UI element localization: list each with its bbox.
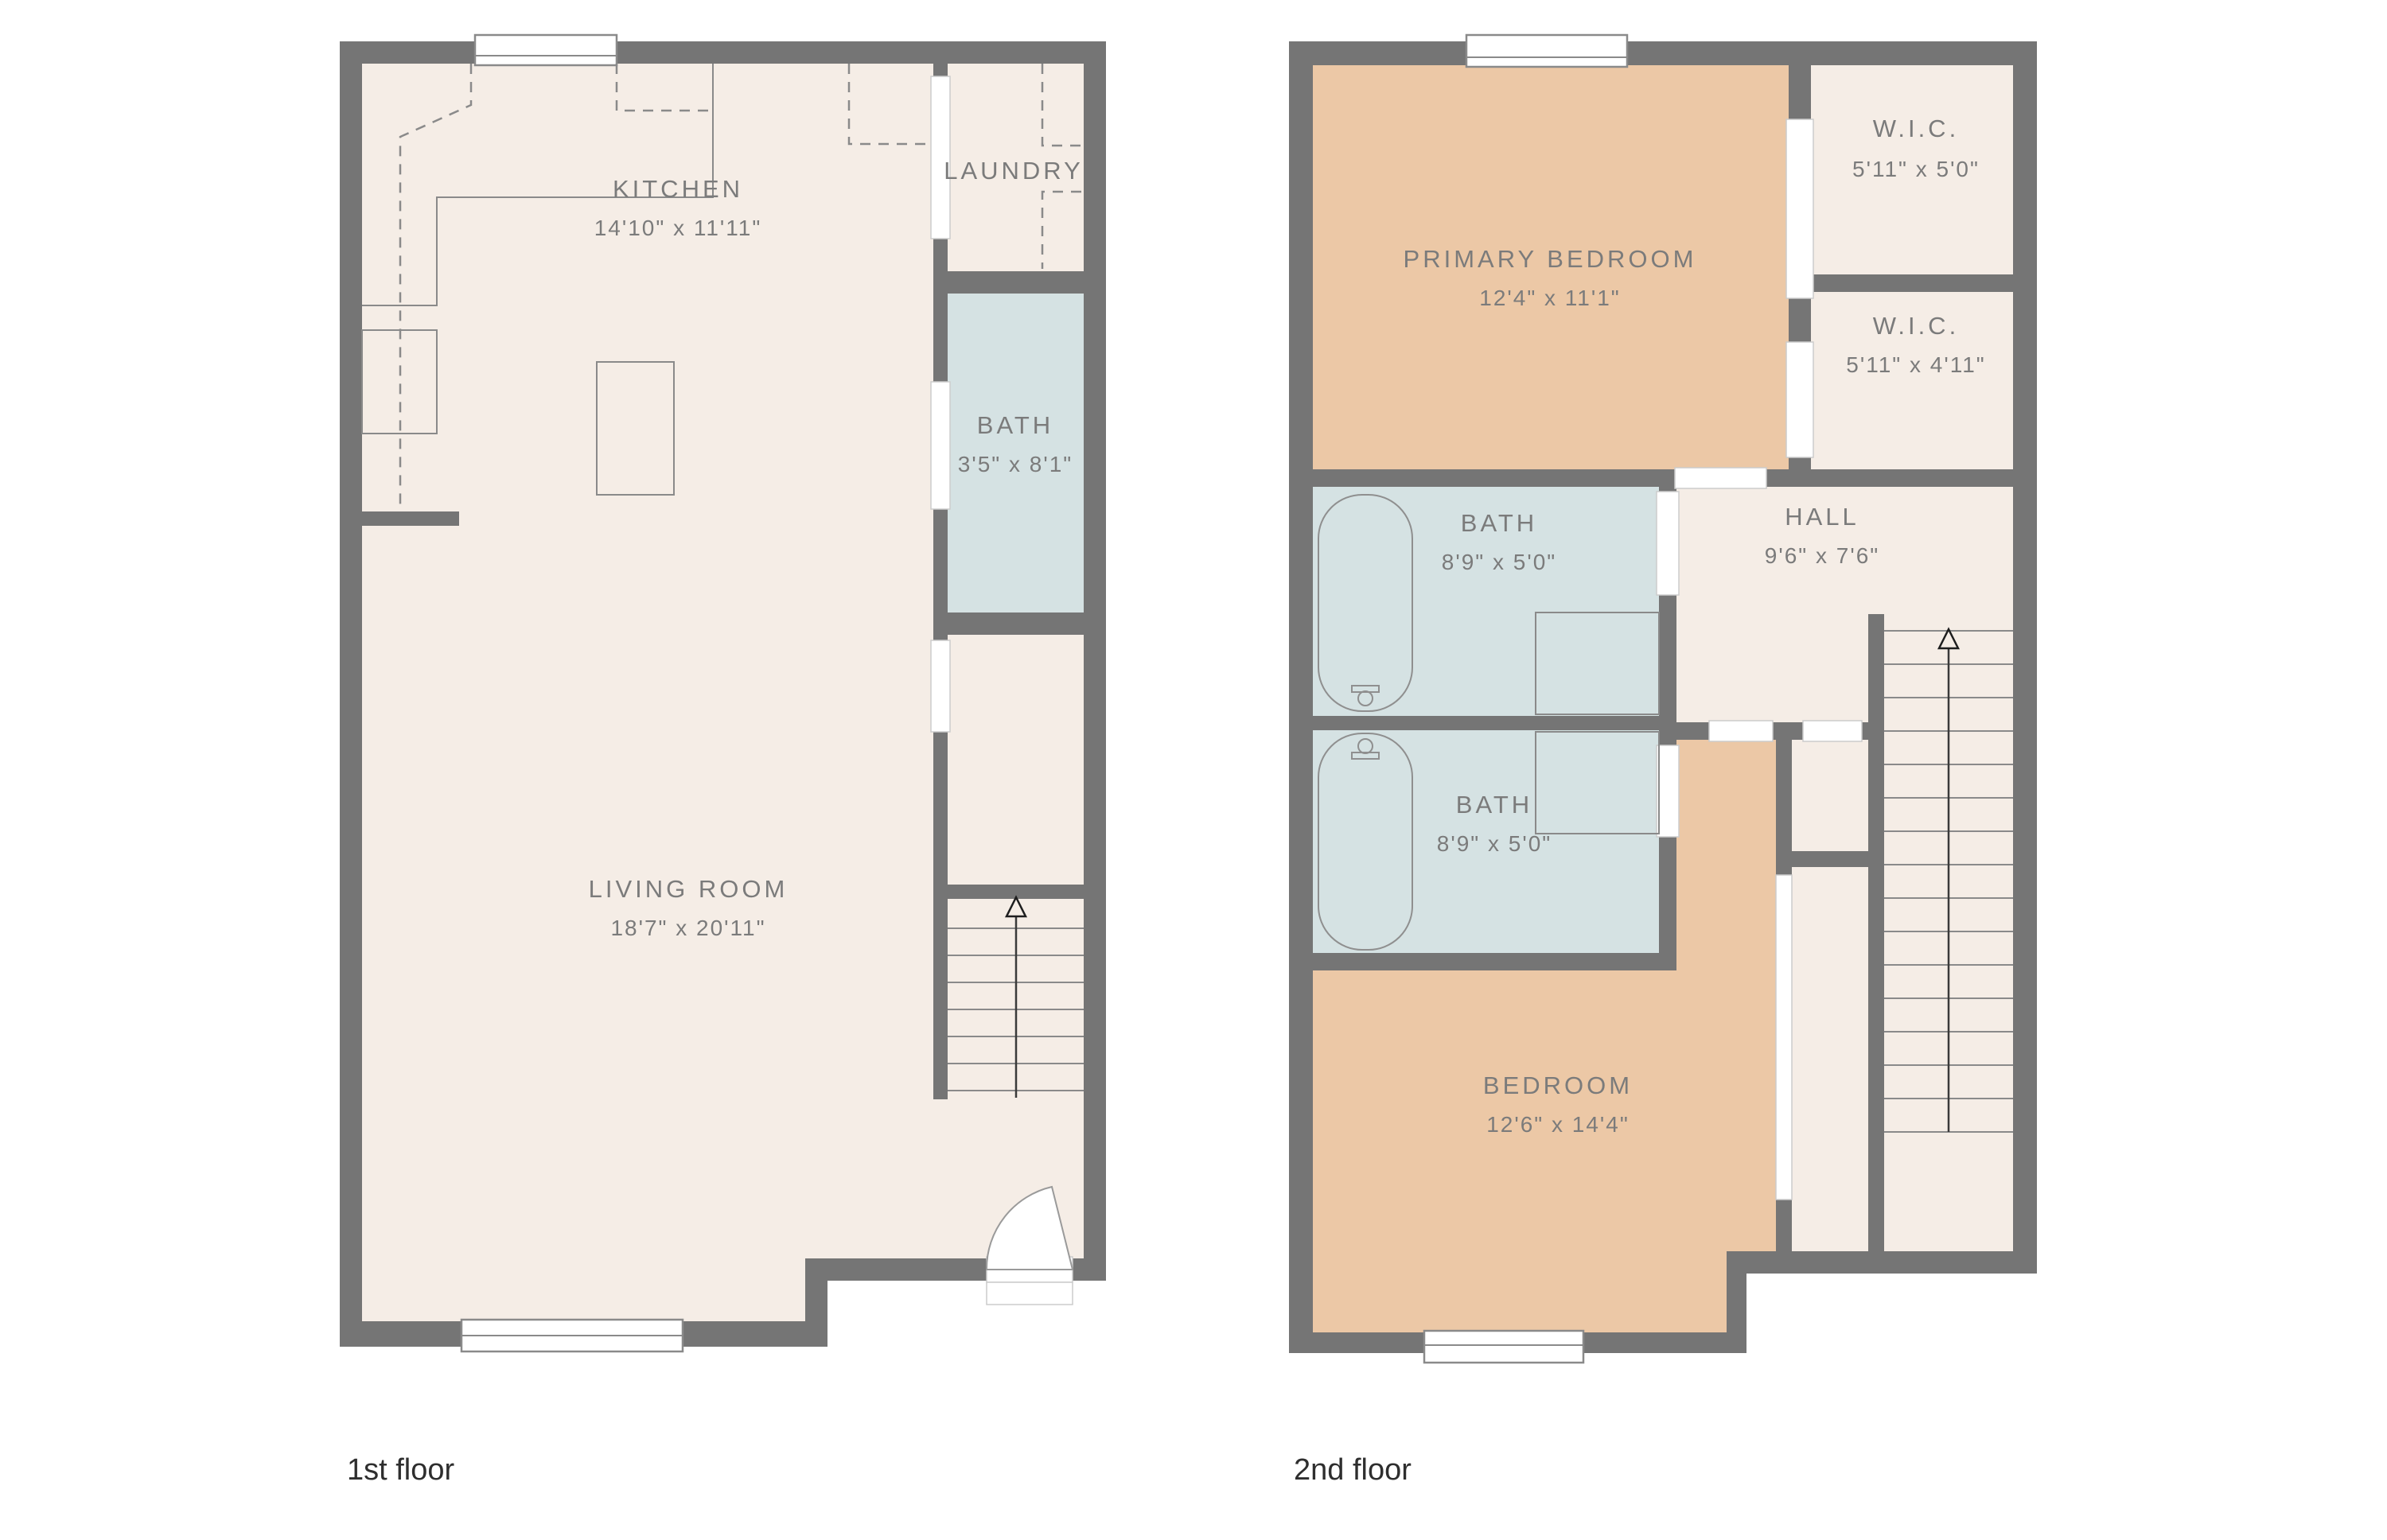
living-room-label: LIVING ROOM	[589, 875, 789, 903]
bath2-dims: 8'9" x 5'0"	[1437, 831, 1552, 856]
floor2-wall-step-horizontal	[1727, 1251, 2037, 1274]
floor2-bedroom-hall-door-opening	[1675, 468, 1766, 488]
floor2-wall-bedroom-bottom	[1313, 469, 2013, 487]
floor1-livingroom-lower-floor	[362, 1258, 805, 1321]
floor2-closets-floor	[1792, 740, 1868, 1251]
bath1-label: BATH	[1461, 509, 1537, 537]
laundry-label: LAUNDRY	[944, 157, 1084, 185]
floor1-wall-right	[1084, 41, 1106, 1281]
floor2-wic1-door-opening	[1786, 119, 1813, 298]
hall-dims: 9'6" x 7'6"	[1765, 543, 1879, 568]
bedroom-label: BEDROOM	[1483, 1071, 1633, 1099]
floor1-wall-left	[340, 41, 362, 1347]
wic2-label: W.I.C.	[1873, 312, 1959, 340]
living-room-dims: 18'7" x 20'11"	[610, 916, 765, 940]
bath-dims: 3'5" x 8'1"	[958, 452, 1073, 476]
window-icon	[1466, 35, 1627, 67]
wic1-dims: 5'11" x 5'0"	[1852, 157, 1980, 181]
floor2-wall-left	[1289, 41, 1313, 1353]
floor2-wall-right	[2013, 41, 2037, 1274]
kitchen-label: KITCHEN	[613, 175, 743, 203]
floor2-wall-closets-mid	[1776, 851, 1868, 867]
floor1-wall-kitchen-stub	[362, 511, 459, 526]
floor2-wall-closet-divider-lower	[1776, 1200, 1792, 1251]
floor2-bath2-door-opening	[1657, 745, 1679, 837]
floor2-bedroom-lower-floor	[1313, 1251, 1727, 1332]
wic1-label: W.I.C.	[1873, 115, 1959, 142]
kitchen-dims: 14'10" x 11'11"	[594, 216, 762, 240]
floor1-closet-door-opening	[931, 640, 950, 732]
primary-bedroom-label: PRIMARY BEDROOM	[1404, 245, 1697, 273]
window-icon	[461, 1320, 683, 1351]
hall-label: HALL	[1785, 503, 1859, 531]
floor2-wall-baths-shared	[1313, 716, 1676, 730]
floor2-wall-wic1-bottom	[1789, 274, 2013, 292]
wic2-dims: 5'11" x 4'11"	[1846, 352, 1985, 377]
floor2-plan: PRIMARY BEDROOM 12'4" x 11'1" W.I.C. 5'1…	[1289, 35, 2037, 1363]
floor2-bedroom-strip-floor	[1676, 740, 1776, 970]
floor2-wic2-door-opening	[1786, 342, 1813, 457]
bath-label: BATH	[977, 411, 1053, 439]
floor1-caption: 1st floor	[347, 1453, 455, 1487]
kitchen-appliance	[362, 330, 437, 434]
primary-bedroom-dims: 12'4" x 11'1"	[1479, 286, 1620, 310]
floor1-wall-closet-bottom	[933, 885, 1084, 899]
floor2-bath1-door-opening	[1657, 492, 1679, 595]
floor2-wall-stairs-left	[1868, 614, 1884, 1251]
bath1-dims: 8'9" x 5'0"	[1442, 550, 1556, 574]
floor-captions: 1st floor 2nd floor	[347, 1453, 1412, 1487]
floor2-wall-bath2-bottom	[1313, 953, 1676, 970]
bedroom-dims: 12'6" x 14'4"	[1486, 1112, 1630, 1137]
bath2-label: BATH	[1456, 791, 1532, 819]
floorplan-page: KITCHEN 14'10" x 11'11" LAUNDRY BATH 3'5…	[0, 0, 2387, 1540]
floor1-bath-door-opening	[931, 382, 950, 509]
kitchen-island	[597, 362, 674, 495]
floorplan-canvas: KITCHEN 14'10" x 11'11" LAUNDRY BATH 3'5…	[0, 0, 2387, 1540]
floor1-floor-areas	[362, 64, 1084, 1321]
floor2-bedroom-floor	[1313, 970, 1776, 1251]
window-icon	[475, 35, 617, 65]
floor1-main-floor	[362, 64, 1084, 1258]
window-icon	[1424, 1331, 1583, 1363]
floor2-wall-top	[1289, 41, 2037, 65]
floor1-wall-top	[340, 41, 1106, 64]
floor2-hall-closet-door-opening	[1803, 721, 1862, 741]
floor1-entry-door-sill	[987, 1282, 1073, 1305]
floor1-wall-laundry-bottom	[933, 271, 1106, 294]
floor2-caption: 2nd floor	[1294, 1453, 1412, 1487]
floor2-hall-bedroom-door-opening	[1709, 721, 1773, 741]
floor1-plan: KITCHEN 14'10" x 11'11" LAUNDRY BATH 3'5…	[340, 35, 1106, 1351]
floor1-wall-bath-bottom	[933, 612, 1106, 635]
floor2-bedroom-closet-opening	[1776, 875, 1792, 1200]
